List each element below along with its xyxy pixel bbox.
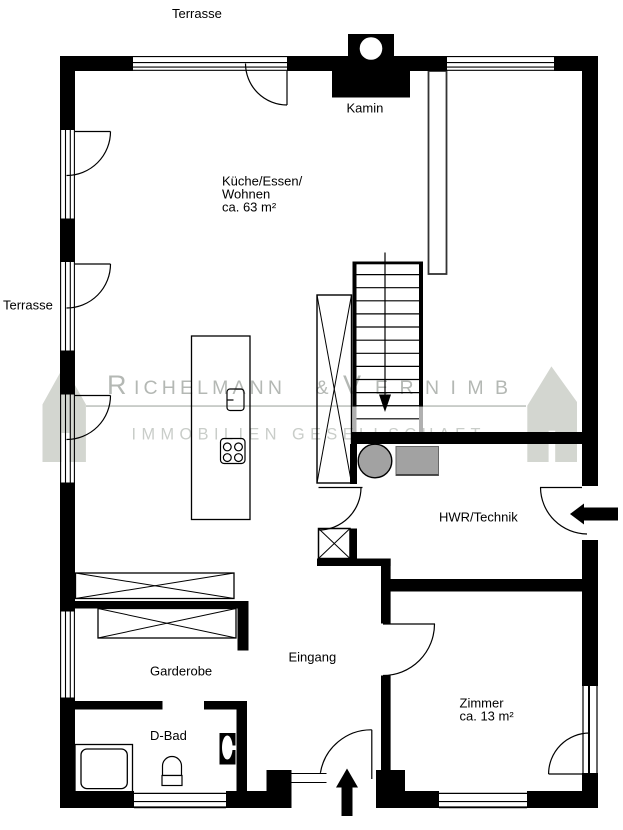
svg-text:Kamin: Kamin: [347, 100, 384, 115]
svg-text:Terrasse: Terrasse: [172, 6, 222, 21]
svg-text:Terrasse: Terrasse: [3, 298, 53, 313]
svg-text:HWR/Technik: HWR/Technik: [439, 510, 518, 525]
svg-text:V: V: [343, 370, 361, 400]
svg-text:Eingang: Eingang: [289, 650, 337, 665]
svg-text:ca. 63 m²: ca. 63 m²: [222, 200, 277, 215]
svg-text:&: &: [316, 377, 329, 399]
svg-text:D-Bad: D-Bad: [150, 728, 187, 743]
svg-text:Garderobe: Garderobe: [150, 664, 212, 679]
svg-text:ICHELMANN: ICHELMANN: [134, 377, 282, 399]
svg-text:R: R: [107, 370, 127, 400]
svg-text:ca. 13 m²: ca. 13 m²: [460, 709, 515, 724]
